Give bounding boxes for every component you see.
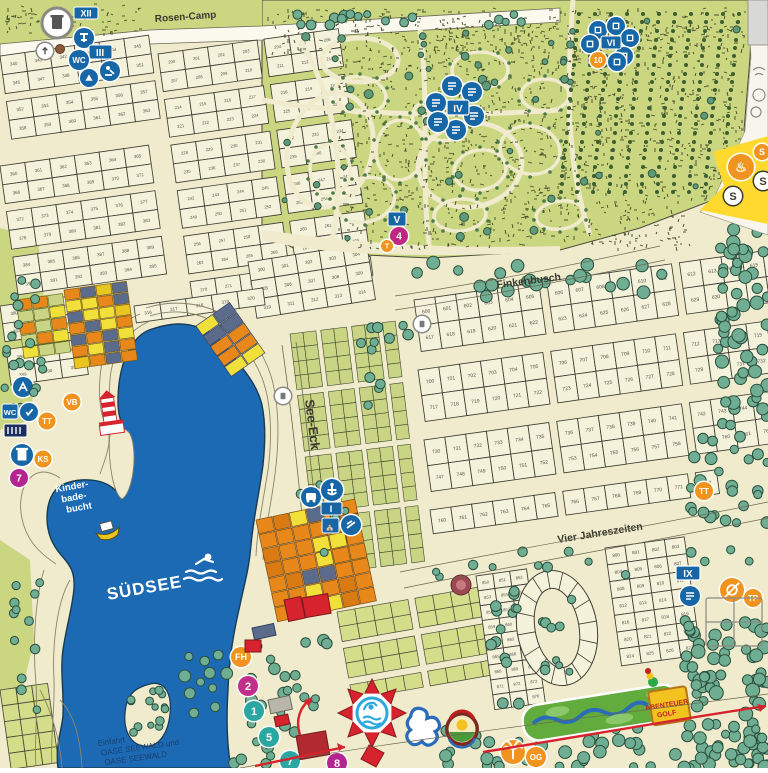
svg-text:222: 222	[202, 120, 210, 126]
svg-text:717: 717	[429, 404, 438, 411]
svg-text:219: 219	[305, 86, 313, 92]
svg-text:712: 712	[691, 341, 700, 348]
svg-text:223: 223	[226, 116, 234, 122]
svg-text:244: 244	[237, 188, 245, 194]
svg-text:602: 602	[463, 302, 472, 309]
svg-text:739: 739	[627, 421, 636, 428]
svg-text:I: I	[330, 504, 333, 514]
svg-text:618: 618	[446, 331, 455, 338]
svg-text:751: 751	[519, 462, 528, 469]
svg-text:738: 738	[606, 424, 615, 431]
svg-text:705: 705	[530, 364, 539, 371]
svg-text:228: 228	[181, 150, 189, 156]
svg-text:630: 630	[712, 294, 721, 301]
svg-text:852: 852	[515, 574, 523, 580]
svg-text:768: 768	[612, 493, 621, 500]
svg-text:754: 754	[589, 453, 598, 460]
svg-text:WC: WC	[72, 56, 86, 65]
svg-text:⛪: ⛪	[325, 521, 334, 531]
svg-text:850: 850	[482, 579, 490, 585]
svg-text:626: 626	[620, 307, 629, 314]
svg-text:761: 761	[458, 514, 467, 521]
svg-text:WC: WC	[4, 408, 17, 417]
svg-text:7: 7	[16, 474, 22, 485]
svg-text:733: 733	[494, 440, 503, 447]
svg-text:S: S	[759, 147, 765, 157]
svg-text:622: 622	[529, 319, 538, 326]
svg-text:709: 709	[621, 351, 630, 358]
svg-text:251: 251	[239, 207, 247, 213]
svg-text:700: 700	[426, 378, 435, 385]
svg-text:710: 710	[642, 348, 651, 355]
svg-text:706: 706	[558, 360, 567, 367]
svg-text:735: 735	[536, 434, 545, 441]
svg-text:♨: ♨	[735, 160, 747, 175]
svg-text:750: 750	[498, 465, 507, 472]
svg-text:753: 753	[568, 455, 577, 462]
svg-text:721: 721	[513, 392, 522, 399]
svg-text:715: 715	[754, 332, 763, 339]
svg-text:623: 623	[558, 315, 567, 322]
svg-text:851: 851	[498, 577, 506, 583]
svg-text:230: 230	[230, 143, 238, 149]
svg-text:204: 204	[274, 44, 282, 50]
svg-text:238: 238	[258, 158, 266, 164]
svg-text:245: 245	[261, 185, 269, 191]
svg-text:762: 762	[479, 511, 488, 518]
svg-text:763: 763	[500, 509, 509, 516]
svg-text:871: 871	[496, 683, 504, 689]
svg-text:707: 707	[579, 357, 588, 364]
svg-text:10: 10	[594, 56, 603, 65]
svg-text:749: 749	[477, 468, 486, 475]
svg-text:VI: VI	[607, 38, 616, 48]
svg-text:769: 769	[633, 490, 642, 497]
svg-text:203: 203	[242, 48, 250, 54]
svg-text:261: 261	[324, 222, 332, 228]
svg-text:757: 757	[651, 444, 660, 451]
svg-text:224: 224	[251, 113, 259, 119]
svg-text:218: 218	[280, 89, 288, 95]
svg-text:869: 869	[511, 666, 519, 672]
svg-text:600: 600	[422, 308, 431, 315]
svg-text:243: 243	[212, 192, 220, 198]
svg-text:4: 4	[396, 232, 402, 243]
svg-text:853: 853	[484, 594, 492, 600]
svg-text:770: 770	[653, 487, 662, 494]
svg-text:756: 756	[630, 447, 639, 454]
svg-text:747: 747	[435, 474, 444, 481]
svg-text:725: 725	[604, 380, 613, 387]
svg-text:610: 610	[638, 278, 647, 285]
svg-text:748: 748	[456, 471, 465, 478]
svg-text:740: 740	[648, 418, 657, 425]
svg-text:239: 239	[289, 154, 297, 160]
svg-text:758: 758	[672, 441, 681, 448]
svg-text:711: 711	[663, 345, 672, 352]
svg-text:604: 604	[505, 297, 514, 304]
svg-text:720: 720	[492, 395, 501, 402]
svg-text:854: 854	[501, 592, 509, 598]
svg-text:730: 730	[432, 448, 441, 455]
svg-text:1: 1	[251, 706, 257, 718]
svg-text:200: 200	[168, 59, 176, 65]
svg-text:IV: IV	[453, 104, 463, 115]
svg-text:216: 216	[224, 97, 232, 103]
svg-text:764: 764	[521, 506, 530, 513]
svg-text:859: 859	[488, 624, 496, 630]
svg-text:873: 873	[530, 678, 538, 684]
svg-text:743: 743	[718, 408, 727, 415]
svg-text:736: 736	[564, 430, 573, 437]
svg-text:752: 752	[539, 459, 548, 466]
svg-text:257: 257	[218, 237, 226, 243]
svg-text:872: 872	[513, 681, 521, 687]
svg-text:702: 702	[467, 372, 476, 379]
svg-text:860: 860	[505, 621, 513, 627]
svg-text:242: 242	[187, 195, 195, 201]
svg-text:767: 767	[591, 496, 600, 503]
svg-text:201: 201	[193, 55, 201, 61]
svg-text:III: III	[96, 48, 105, 59]
svg-text:270: 270	[200, 286, 208, 292]
svg-text:263: 263	[196, 260, 204, 266]
svg-text:256: 256	[193, 241, 201, 247]
svg-text:250: 250	[214, 211, 222, 217]
svg-text:607: 607	[575, 287, 584, 294]
svg-text:734: 734	[515, 437, 524, 444]
svg-text:617: 617	[425, 334, 434, 341]
svg-text:215: 215	[199, 101, 207, 107]
svg-text:701: 701	[447, 375, 456, 382]
svg-text:252: 252	[264, 204, 272, 210]
svg-text:731: 731	[453, 445, 462, 452]
svg-text:OG: OG	[530, 753, 542, 762]
svg-text:876: 876	[532, 693, 540, 699]
svg-text:612: 612	[687, 271, 696, 278]
svg-text:722: 722	[533, 389, 542, 396]
svg-text:742: 742	[697, 411, 706, 418]
svg-text:766: 766	[570, 499, 579, 506]
svg-text:741: 741	[668, 415, 677, 422]
svg-text:703: 703	[488, 370, 497, 377]
svg-text:265: 265	[246, 253, 254, 259]
svg-text:760: 760	[722, 434, 731, 441]
svg-text:FH: FH	[235, 652, 247, 662]
svg-text:601: 601	[443, 305, 452, 312]
svg-text:719: 719	[471, 398, 480, 405]
svg-text:S: S	[759, 176, 766, 188]
svg-text:620: 620	[488, 325, 497, 332]
svg-text:2: 2	[245, 681, 251, 693]
svg-text:VB: VB	[66, 398, 77, 407]
svg-text:TT: TT	[699, 487, 709, 496]
svg-text:IX: IX	[683, 569, 693, 580]
svg-text:619: 619	[467, 328, 476, 335]
svg-text:704: 704	[509, 367, 518, 374]
svg-text:KS: KS	[37, 455, 49, 464]
svg-text:229: 229	[205, 146, 213, 152]
svg-text:608: 608	[596, 284, 605, 291]
svg-text:865: 865	[492, 653, 500, 659]
svg-text:236: 236	[208, 165, 216, 171]
svg-text:208: 208	[195, 74, 203, 80]
svg-text:209: 209	[220, 70, 228, 76]
svg-text:728: 728	[666, 371, 675, 378]
svg-text:762: 762	[763, 428, 768, 435]
svg-text:866: 866	[509, 651, 517, 657]
svg-text:771: 771	[674, 484, 683, 491]
svg-text:737: 737	[585, 427, 594, 434]
svg-text:T: T	[385, 244, 390, 251]
svg-text:605: 605	[526, 294, 535, 301]
svg-text:266: 266	[270, 249, 278, 255]
svg-text:249: 249	[190, 214, 198, 220]
svg-text:708: 708	[600, 354, 609, 361]
svg-text:723: 723	[562, 385, 571, 392]
svg-text:606: 606	[554, 290, 563, 297]
svg-text:225: 225	[283, 108, 291, 114]
svg-text:755: 755	[610, 450, 619, 457]
svg-text:TT: TT	[42, 417, 52, 426]
svg-text:8: 8	[334, 758, 340, 768]
svg-text:235: 235	[183, 169, 191, 175]
svg-text:726: 726	[624, 377, 633, 384]
svg-text:729: 729	[695, 367, 704, 374]
svg-text:868: 868	[494, 668, 502, 674]
svg-text:718: 718	[450, 401, 459, 408]
svg-text:207: 207	[171, 77, 179, 83]
svg-text:627: 627	[641, 304, 650, 311]
svg-text:727: 727	[645, 374, 654, 381]
svg-text:624: 624	[579, 313, 588, 320]
svg-text:237: 237	[233, 162, 241, 168]
svg-text:613: 613	[708, 268, 717, 275]
svg-text:765: 765	[542, 503, 551, 510]
svg-text:210: 210	[245, 67, 253, 73]
svg-text:XII: XII	[80, 9, 91, 19]
svg-text:217: 217	[249, 94, 257, 100]
svg-text:260: 260	[299, 226, 307, 232]
svg-text:214: 214	[174, 104, 182, 110]
svg-text:258: 258	[243, 234, 251, 240]
svg-text:264: 264	[221, 256, 229, 262]
svg-text:V: V	[394, 215, 401, 226]
svg-text:221: 221	[177, 123, 185, 129]
svg-text:202: 202	[217, 52, 225, 58]
svg-text:625: 625	[600, 310, 609, 317]
svg-text:732: 732	[757, 358, 766, 365]
svg-text:724: 724	[583, 383, 592, 390]
svg-text:628: 628	[662, 301, 671, 308]
svg-text:S: S	[729, 191, 736, 203]
svg-text:271: 271	[225, 283, 233, 289]
svg-text:863: 863	[507, 636, 515, 642]
svg-text:206: 206	[323, 37, 331, 43]
svg-text:231: 231	[255, 139, 263, 145]
svg-text:233: 233	[311, 131, 319, 137]
svg-text:621: 621	[509, 322, 518, 329]
svg-text:732: 732	[473, 442, 482, 449]
svg-text:629: 629	[691, 297, 700, 304]
svg-text:760: 760	[438, 517, 447, 524]
svg-text:5: 5	[266, 732, 272, 744]
